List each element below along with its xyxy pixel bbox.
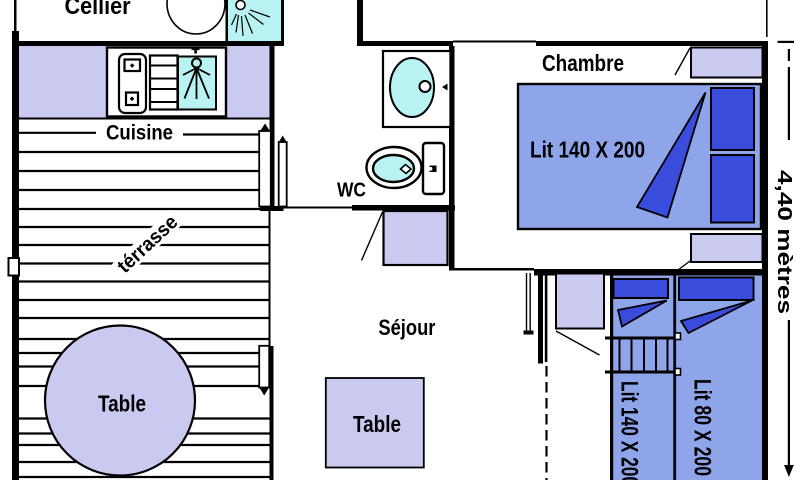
svg-text:Chambre: Chambre — [542, 50, 624, 76]
svg-text:Table: Table — [353, 411, 401, 437]
svg-text:4,40 mètres: 4,40 mètres — [773, 170, 795, 314]
svg-text:Séjour: Séjour — [378, 315, 435, 340]
svg-text:WC: WC — [337, 180, 366, 202]
svg-text:Lit 140 X 200: Lit 140 X 200 — [616, 381, 643, 480]
svg-text:Table: Table — [98, 391, 146, 417]
svg-text:Cellier: Cellier — [65, 0, 131, 20]
svg-text:Cuisine: Cuisine — [106, 122, 173, 145]
svg-text:Lit 80 X 200: Lit 80 X 200 — [689, 379, 716, 476]
svg-text:Lit 140 X 200: Lit 140 X 200 — [530, 137, 645, 163]
